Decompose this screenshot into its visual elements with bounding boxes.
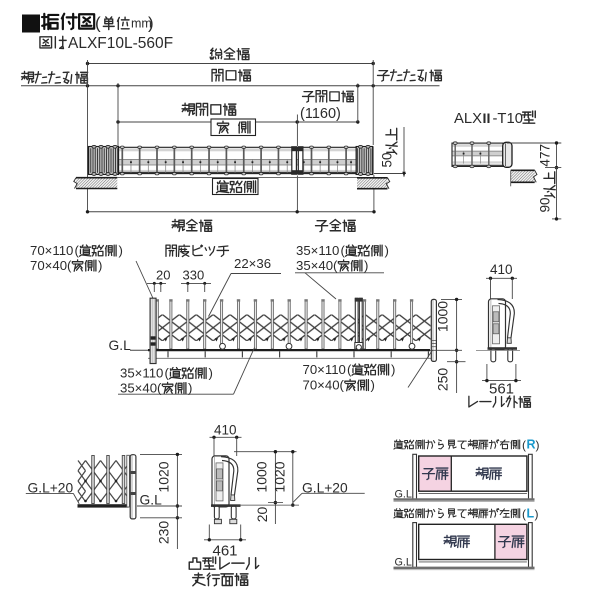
svg-text:(: ( <box>340 378 345 393</box>
svg-text:G.L: G.L <box>395 488 412 500</box>
svg-text:(: ( <box>165 366 170 381</box>
svg-text:477: 477 <box>538 144 553 167</box>
svg-text:(1160): (1160) <box>300 106 341 122</box>
svg-text:1000: 1000 <box>253 461 269 492</box>
svg-text:50: 50 <box>380 152 395 167</box>
svg-text:22×36: 22×36 <box>234 256 271 271</box>
svg-text:70×110: 70×110 <box>30 243 73 258</box>
svg-text:70×110: 70×110 <box>303 362 346 377</box>
svg-text:(: ( <box>95 14 101 33</box>
svg-text:II: II <box>483 111 491 127</box>
svg-text:R: R <box>527 438 536 452</box>
svg-text:561: 561 <box>489 381 514 398</box>
svg-text:410: 410 <box>490 262 513 277</box>
svg-text:35×40: 35×40 <box>296 258 333 273</box>
svg-text:35×40: 35×40 <box>120 381 157 396</box>
svg-text:250: 250 <box>435 368 451 392</box>
svg-text:35×110: 35×110 <box>296 243 339 258</box>
svg-text:L: L <box>527 507 535 521</box>
svg-text:): ) <box>209 366 213 381</box>
svg-text:1000: 1000 <box>435 301 451 332</box>
svg-text:G.L: G.L <box>109 338 132 353</box>
svg-text:20: 20 <box>156 268 170 283</box>
svg-text:): ) <box>119 243 123 258</box>
svg-text:(: ( <box>75 243 80 258</box>
svg-text:): ) <box>385 243 389 258</box>
svg-text:(: ( <box>341 243 346 258</box>
svg-text:): ) <box>188 381 192 396</box>
svg-text:(: ( <box>347 362 352 377</box>
svg-text:ALX: ALX <box>454 111 482 127</box>
svg-text:70×40: 70×40 <box>303 378 340 393</box>
svg-text:G.L: G.L <box>140 493 163 508</box>
svg-text:): ) <box>535 507 539 521</box>
svg-text:1020: 1020 <box>271 461 287 492</box>
svg-text:-T10: -T10 <box>493 111 523 127</box>
svg-text:35×110: 35×110 <box>120 366 163 381</box>
svg-text:70×40: 70×40 <box>30 258 67 273</box>
svg-text:): ) <box>98 258 102 273</box>
svg-text:(: ( <box>522 507 526 521</box>
svg-text:): ) <box>148 14 154 33</box>
svg-text:410: 410 <box>214 423 237 438</box>
svg-text:): ) <box>391 362 395 377</box>
svg-text:(: ( <box>522 438 526 452</box>
svg-text:330: 330 <box>183 268 205 283</box>
svg-text:1020: 1020 <box>155 461 171 492</box>
svg-text:G.L: G.L <box>395 557 412 569</box>
svg-text:20: 20 <box>254 507 270 523</box>
svg-text:ALXF10L-560F: ALXF10L-560F <box>68 35 173 52</box>
svg-text:(: ( <box>157 381 162 396</box>
svg-text:): ) <box>364 258 368 273</box>
svg-text:): ) <box>536 438 540 452</box>
svg-text:(: ( <box>67 258 72 273</box>
svg-text:90: 90 <box>538 197 553 212</box>
svg-text:): ) <box>371 378 375 393</box>
svg-text:230: 230 <box>155 521 171 545</box>
svg-text:(: ( <box>333 258 338 273</box>
